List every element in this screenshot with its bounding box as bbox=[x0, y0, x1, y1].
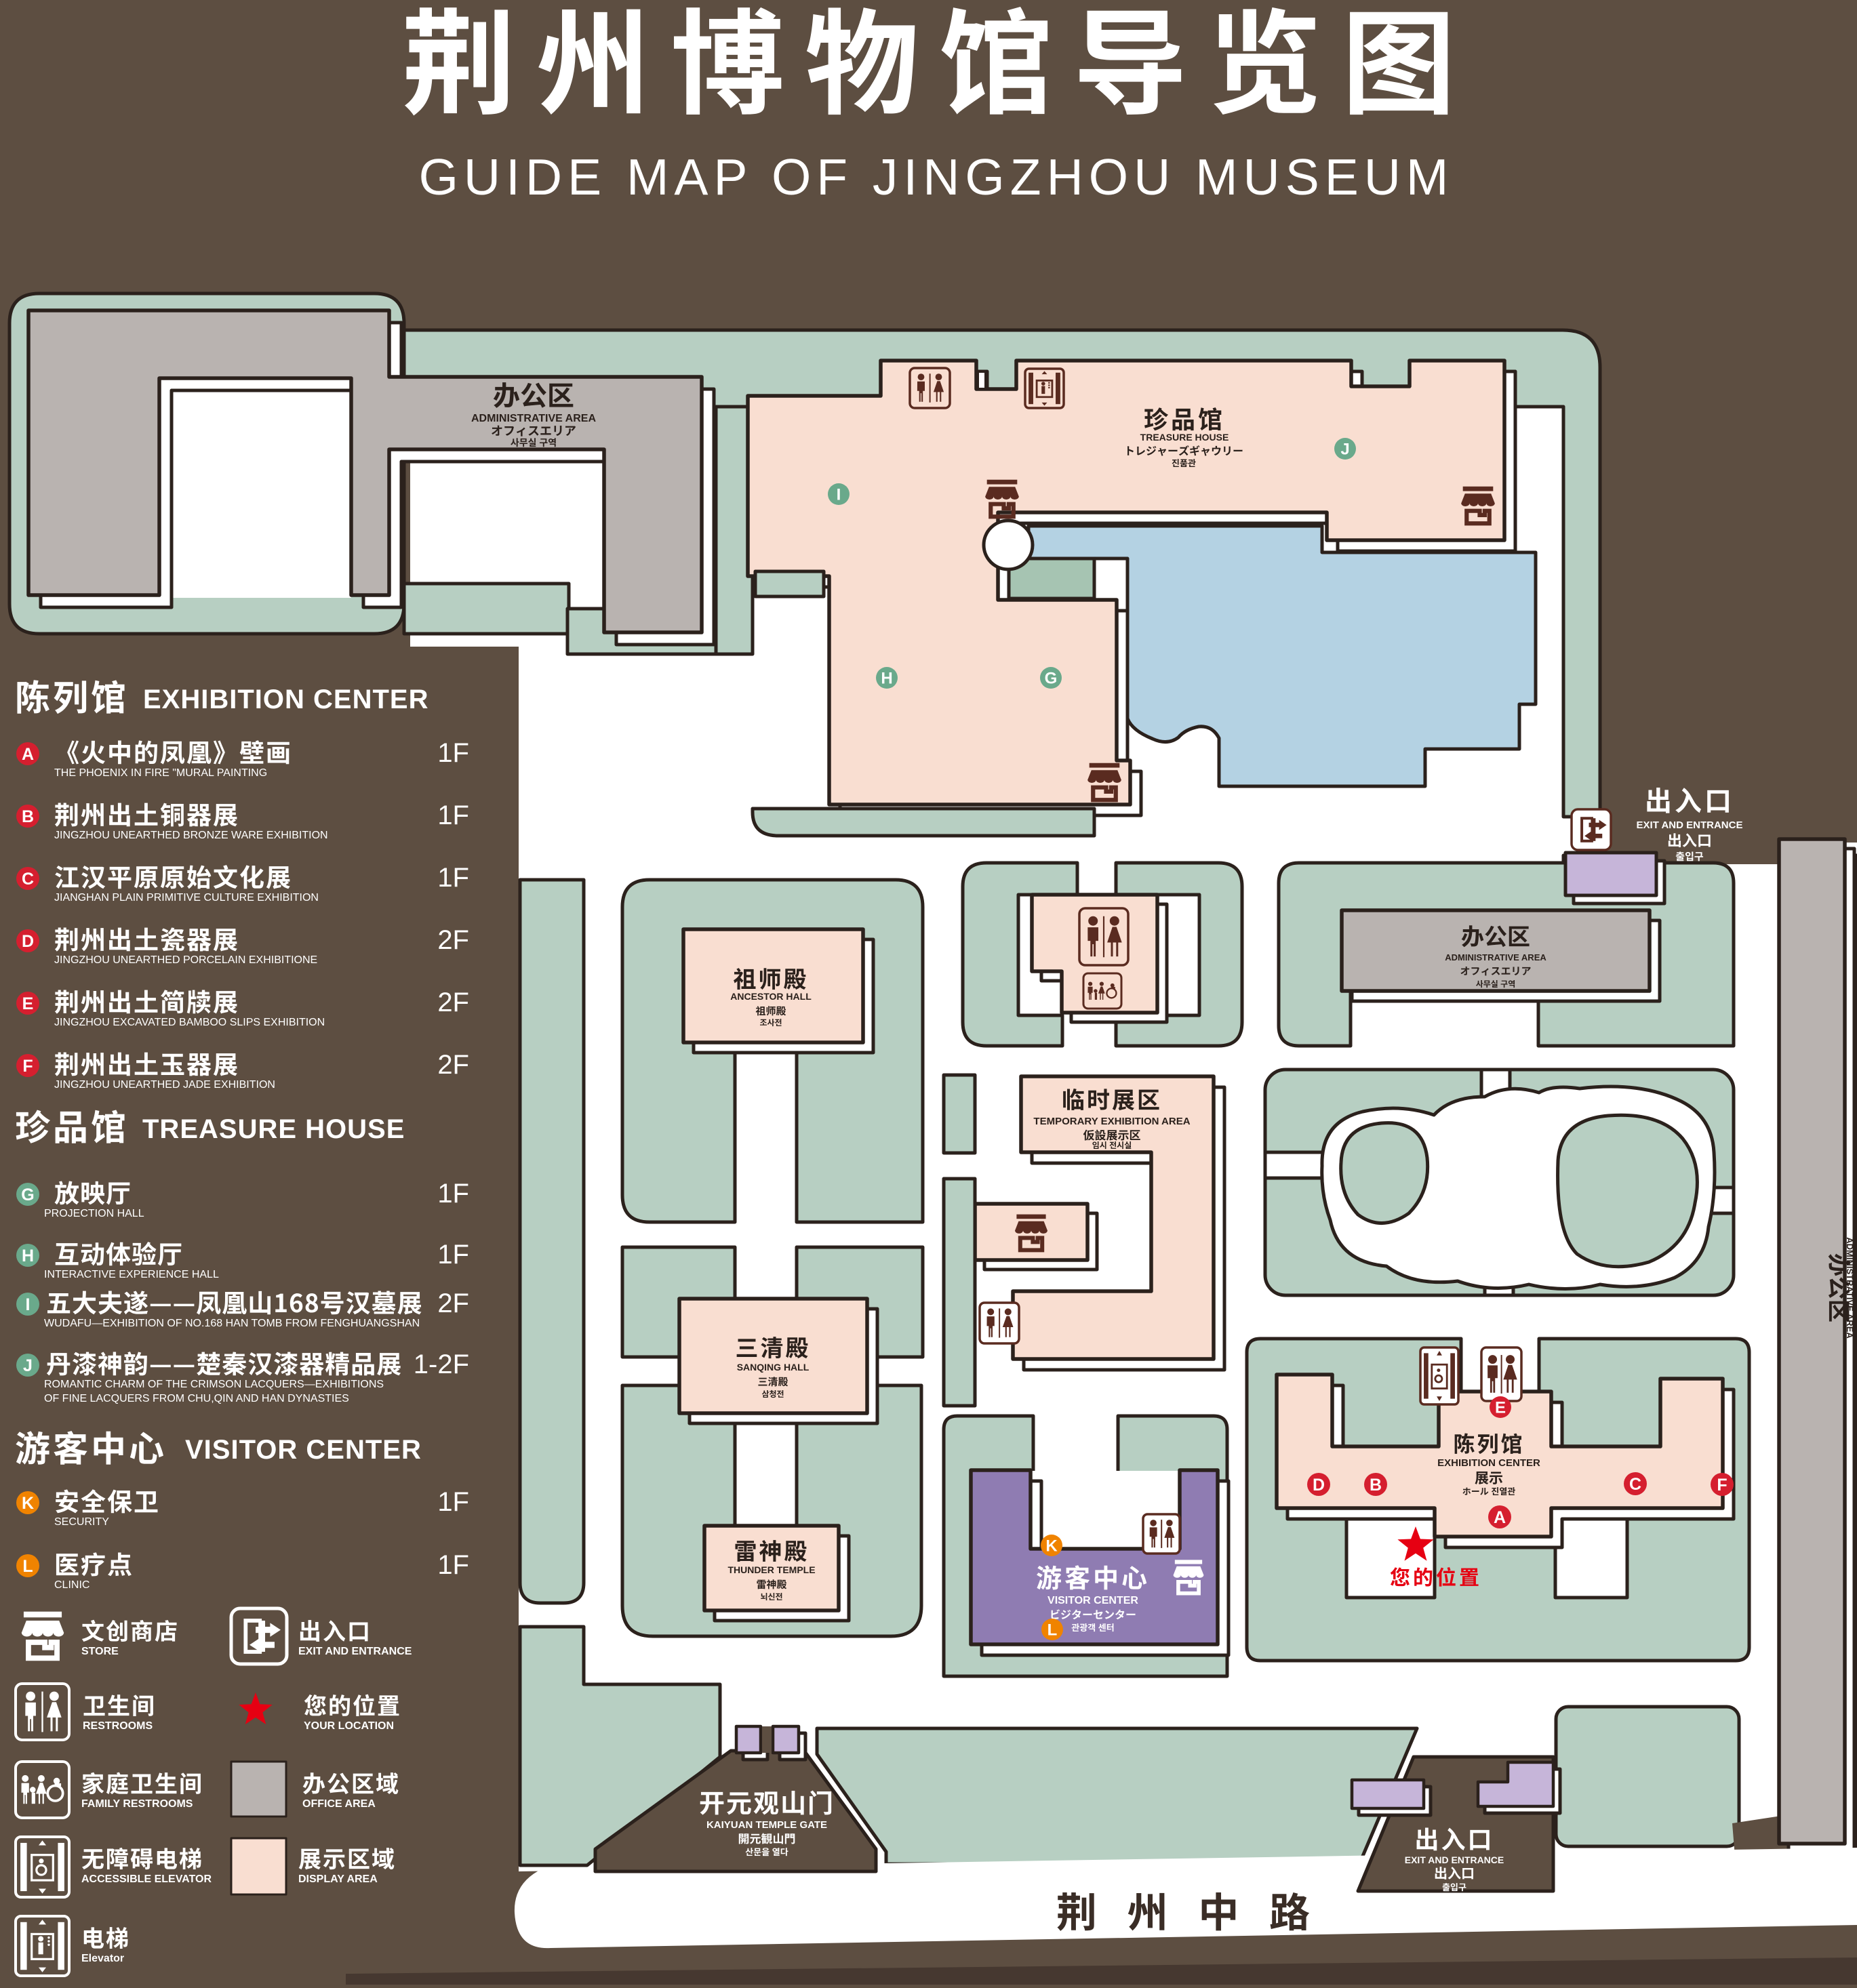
svg-text:B: B bbox=[22, 807, 34, 826]
svg-text:1F: 1F bbox=[437, 800, 469, 830]
svg-text:放映厅: 放映厅 bbox=[54, 1173, 132, 1210]
svg-text:家庭卫生间: 家庭卫生间 bbox=[81, 1766, 203, 1799]
svg-text:出入口: 出入口 bbox=[298, 1613, 372, 1646]
svg-text:展示区域: 展示区域 bbox=[298, 1841, 396, 1874]
svg-text:E: E bbox=[1495, 1398, 1506, 1417]
svg-text:사무실 구역: 사무실 구역 bbox=[1476, 978, 1516, 990]
svg-text:1F: 1F bbox=[437, 1550, 469, 1580]
svg-text:1F: 1F bbox=[437, 1487, 469, 1517]
svg-text:CLINIC: CLINIC bbox=[54, 1579, 89, 1591]
svg-text:雷神殿: 雷神殿 bbox=[734, 1533, 810, 1566]
svg-text:三清殿: 三清殿 bbox=[736, 1330, 811, 1363]
svg-text:TREASURE HOUSE: TREASURE HOUSE bbox=[142, 1114, 405, 1144]
svg-text:珍品馆: 珍品馆 bbox=[15, 1099, 129, 1150]
svg-text:C: C bbox=[22, 870, 34, 889]
svg-text:祖师殿: 祖师殿 bbox=[734, 961, 809, 994]
svg-text:DISPLAY AREA: DISPLAY AREA bbox=[298, 1873, 378, 1885]
svg-text:办公区域: 办公区域 bbox=[302, 1766, 400, 1799]
svg-text:F: F bbox=[22, 1057, 33, 1076]
svg-text:オフィスエリア: オフィスエリア bbox=[1460, 964, 1531, 978]
svg-text:VISITOR CENTER: VISITOR CENTER bbox=[1047, 1595, 1138, 1606]
svg-text:산문을 열다: 산문을 열다 bbox=[745, 1845, 788, 1858]
svg-text:ADMINISTRATIVE AREA: ADMINISTRATIVE AREA bbox=[1445, 952, 1546, 962]
svg-text:2F: 2F bbox=[437, 1289, 469, 1318]
svg-text:VISITOR CENTER: VISITOR CENTER bbox=[185, 1435, 422, 1465]
svg-text:1-2F: 1-2F bbox=[414, 1350, 469, 1379]
svg-text:K: K bbox=[1045, 1537, 1058, 1555]
svg-text:YOUR LOCATION: YOUR LOCATION bbox=[304, 1720, 394, 1732]
svg-text:办公区: 办公区 bbox=[493, 374, 574, 413]
svg-text:L: L bbox=[22, 1557, 33, 1576]
svg-text:EXHIBITION CENTER: EXHIBITION CENTER bbox=[143, 685, 428, 714]
svg-text:OF FINE LACQUERS FROM CHU,QIN: OF FINE LACQUERS FROM CHU,QIN AND HAN DY… bbox=[44, 1393, 349, 1404]
svg-text:出入口: 出入口 bbox=[1667, 829, 1712, 851]
svg-text:安全保卫: 安全保卫 bbox=[54, 1482, 160, 1518]
svg-text:文创商店: 文创商店 bbox=[81, 1613, 179, 1646]
svg-text:游客中心: 游客中心 bbox=[15, 1421, 167, 1472]
svg-text:荆州出土简牍展: 荆州出土简牍展 bbox=[54, 982, 239, 1019]
svg-text:JIANGHAN PLAIN PRIMITIVE CULTU: JIANGHAN PLAIN PRIMITIVE CULTURE EXHIBIT… bbox=[54, 892, 319, 904]
svg-text:INTERACTIVE EXPERIENCE HALL: INTERACTIVE EXPERIENCE HALL bbox=[44, 1269, 219, 1280]
svg-text:荆州出土瓷器展: 荆州出土瓷器展 bbox=[54, 920, 239, 956]
svg-text:临时展区: 临时展区 bbox=[1062, 1082, 1162, 1115]
svg-text:电梯: 电梯 bbox=[81, 1920, 130, 1953]
svg-text:1F: 1F bbox=[437, 1179, 469, 1209]
svg-text:ホール 진열관: ホール 진열관 bbox=[1462, 1484, 1516, 1497]
svg-text:THE PHOENIX IN FIRE "MURAL PAI: THE PHOENIX IN FIRE "MURAL PAINTING bbox=[54, 767, 267, 779]
svg-text:江汉平原原始文化展: 江汉平原原始文化展 bbox=[54, 857, 292, 894]
svg-text:互动体验厅: 互动体验厅 bbox=[54, 1234, 183, 1271]
svg-text:I: I bbox=[837, 485, 841, 504]
svg-text:F: F bbox=[1717, 1476, 1727, 1495]
svg-text:五大夫遂——凤凰山168号汉墓展: 五大夫遂——凤凰山168号汉墓展 bbox=[46, 1283, 423, 1320]
svg-text:사무실 구역: 사무실 구역 bbox=[511, 436, 557, 449]
svg-text:B: B bbox=[1370, 1476, 1382, 1495]
svg-text:H: H bbox=[881, 669, 892, 687]
svg-text:办公区: 办公区 bbox=[1461, 918, 1530, 952]
svg-text:G: G bbox=[21, 1185, 34, 1204]
svg-text:ROMANTIC CHARM OF THE CRIMSON: ROMANTIC CHARM OF THE CRIMSON LACQUERS—E… bbox=[44, 1379, 384, 1390]
svg-text:J: J bbox=[23, 1356, 33, 1375]
svg-text:THUNDER TEMPLE: THUNDER TEMPLE bbox=[727, 1564, 815, 1575]
svg-text:雷神殿: 雷神殿 bbox=[756, 1577, 786, 1591]
svg-text:J: J bbox=[1340, 440, 1349, 458]
svg-text:A: A bbox=[1494, 1508, 1506, 1527]
svg-text:陈列馆: 陈列馆 bbox=[1453, 1427, 1524, 1459]
svg-text:三清殿: 三清殿 bbox=[757, 1375, 788, 1389]
svg-text:E: E bbox=[22, 994, 34, 1013]
svg-text:医疗点: 医疗点 bbox=[54, 1545, 134, 1581]
svg-text:STORE: STORE bbox=[81, 1646, 119, 1657]
svg-text:관광객 센터: 관광객 센터 bbox=[1071, 1621, 1114, 1634]
svg-text:FAMILY RESTROOMS: FAMILY RESTROOMS bbox=[81, 1798, 193, 1810]
svg-text:2F: 2F bbox=[437, 1050, 469, 1080]
svg-text:開元観山門: 開元観山門 bbox=[738, 1829, 796, 1846]
svg-text:1F: 1F bbox=[437, 738, 469, 768]
svg-text:출입구: 출입구 bbox=[1675, 849, 1704, 864]
svg-text:无障碍电梯: 无障碍电梯 bbox=[81, 1841, 203, 1874]
svg-text:《火中的凤凰》壁画: 《火中的凤凰》壁画 bbox=[54, 733, 292, 769]
svg-text:出入口: 出入口 bbox=[1414, 1821, 1494, 1856]
svg-text:2F: 2F bbox=[437, 988, 469, 1017]
svg-text:I: I bbox=[26, 1295, 31, 1314]
svg-text:您的位置: 您的位置 bbox=[1390, 1561, 1482, 1591]
svg-text:1F: 1F bbox=[437, 1240, 469, 1270]
svg-text:2F: 2F bbox=[437, 925, 469, 955]
svg-text:C: C bbox=[1629, 1475, 1641, 1494]
svg-text:出入口: 出入口 bbox=[1645, 779, 1734, 819]
svg-text:임시 전시실: 임시 전시실 bbox=[1092, 1139, 1132, 1151]
svg-text:GUIDE MAP OF JINGZHOU MUSEUM: GUIDE MAP OF JINGZHOU MUSEUM bbox=[419, 148, 1454, 205]
svg-text:WUDAFU—EXHIBITION OF NO.168 HA: WUDAFU—EXHIBITION OF NO.168 HAN TOMB FRO… bbox=[44, 1318, 420, 1329]
svg-text:H: H bbox=[22, 1246, 34, 1265]
svg-text:A: A bbox=[22, 745, 34, 764]
svg-text:RESTROOMS: RESTROOMS bbox=[83, 1720, 153, 1732]
svg-text:G: G bbox=[1045, 669, 1058, 687]
svg-text:Elevator: Elevator bbox=[81, 1953, 124, 1964]
svg-text:荆州博物馆导览图: 荆州博物馆导览图 bbox=[402, 0, 1476, 138]
svg-text:JINGZHOU UNEARTHED BRONZE WARE: JINGZHOU UNEARTHED BRONZE WARE EXHIBITIO… bbox=[54, 830, 328, 841]
svg-text:荆州出土玉器展: 荆州出土玉器展 bbox=[54, 1044, 239, 1081]
svg-text:JINGZHOU UNEARTHED PORCELAIN E: JINGZHOU UNEARTHED PORCELAIN EXHIBITIONE bbox=[54, 954, 317, 966]
svg-text:ビジターセンター: ビジターセンター bbox=[1050, 1606, 1136, 1622]
svg-text:游客中心: 游客中心 bbox=[1036, 1558, 1150, 1595]
svg-text:荆州出土铜器展: 荆州出土铜器展 bbox=[54, 795, 239, 832]
svg-text:丹漆神韵——楚秦汉漆器精品展: 丹漆神韵——楚秦汉漆器精品展 bbox=[46, 1344, 402, 1381]
svg-text:D: D bbox=[1313, 1476, 1325, 1495]
svg-text:SANQING HALL: SANQING HALL bbox=[737, 1362, 810, 1373]
svg-text:祖师殿: 祖师殿 bbox=[755, 1004, 786, 1018]
svg-text:您的位置: 您的位置 bbox=[304, 1688, 401, 1721]
svg-text:荆 州 中 路: 荆 州 中 路 bbox=[1056, 1880, 1319, 1939]
svg-text:珍品馆: 珍品馆 bbox=[1144, 401, 1225, 436]
svg-text:진품관: 진품관 bbox=[1172, 456, 1196, 469]
svg-text:K: K bbox=[22, 1494, 34, 1513]
svg-text:ADMINISTRATIVE AREA: ADMINISTRATIVE AREA bbox=[1845, 1237, 1855, 1339]
svg-text:ACCESSIBLE ELEVATOR: ACCESSIBLE ELEVATOR bbox=[81, 1873, 212, 1885]
svg-text:EXIT AND ENTRANCE: EXIT AND ENTRANCE bbox=[298, 1646, 412, 1657]
svg-text:JINGZHOU EXCAVATED BAMBOO SLIP: JINGZHOU EXCAVATED BAMBOO SLIPS EXHIBITI… bbox=[54, 1017, 325, 1028]
svg-text:卫生间: 卫生间 bbox=[83, 1688, 156, 1721]
svg-text:开元观山门: 开元观山门 bbox=[699, 1783, 835, 1820]
svg-text:뇌신전: 뇌신전 bbox=[760, 1591, 782, 1602]
svg-text:SECURITY: SECURITY bbox=[54, 1516, 109, 1528]
svg-text:조사전: 조사전 bbox=[759, 1017, 782, 1028]
svg-text:JINGZHOU UNEARTHED JADE EXHIBI: JINGZHOU UNEARTHED JADE EXHIBITION bbox=[54, 1079, 275, 1091]
svg-text:TREASURE HOUSE: TREASURE HOUSE bbox=[1140, 432, 1229, 443]
svg-text:삼청전: 삼청전 bbox=[761, 1388, 784, 1400]
svg-text:出入口: 出入口 bbox=[1434, 1863, 1475, 1882]
svg-text:D: D bbox=[22, 932, 34, 951]
svg-text:ANCESTOR HALL: ANCESTOR HALL bbox=[730, 991, 812, 1002]
svg-text:陈列馆: 陈列馆 bbox=[15, 670, 129, 721]
svg-text:OFFICE AREA: OFFICE AREA bbox=[302, 1798, 376, 1810]
svg-text:L: L bbox=[1047, 1621, 1058, 1639]
svg-text:출입구: 출입구 bbox=[1442, 1880, 1466, 1893]
svg-text:1F: 1F bbox=[437, 863, 469, 893]
svg-text:PROJECTION HALL: PROJECTION HALL bbox=[44, 1208, 144, 1219]
